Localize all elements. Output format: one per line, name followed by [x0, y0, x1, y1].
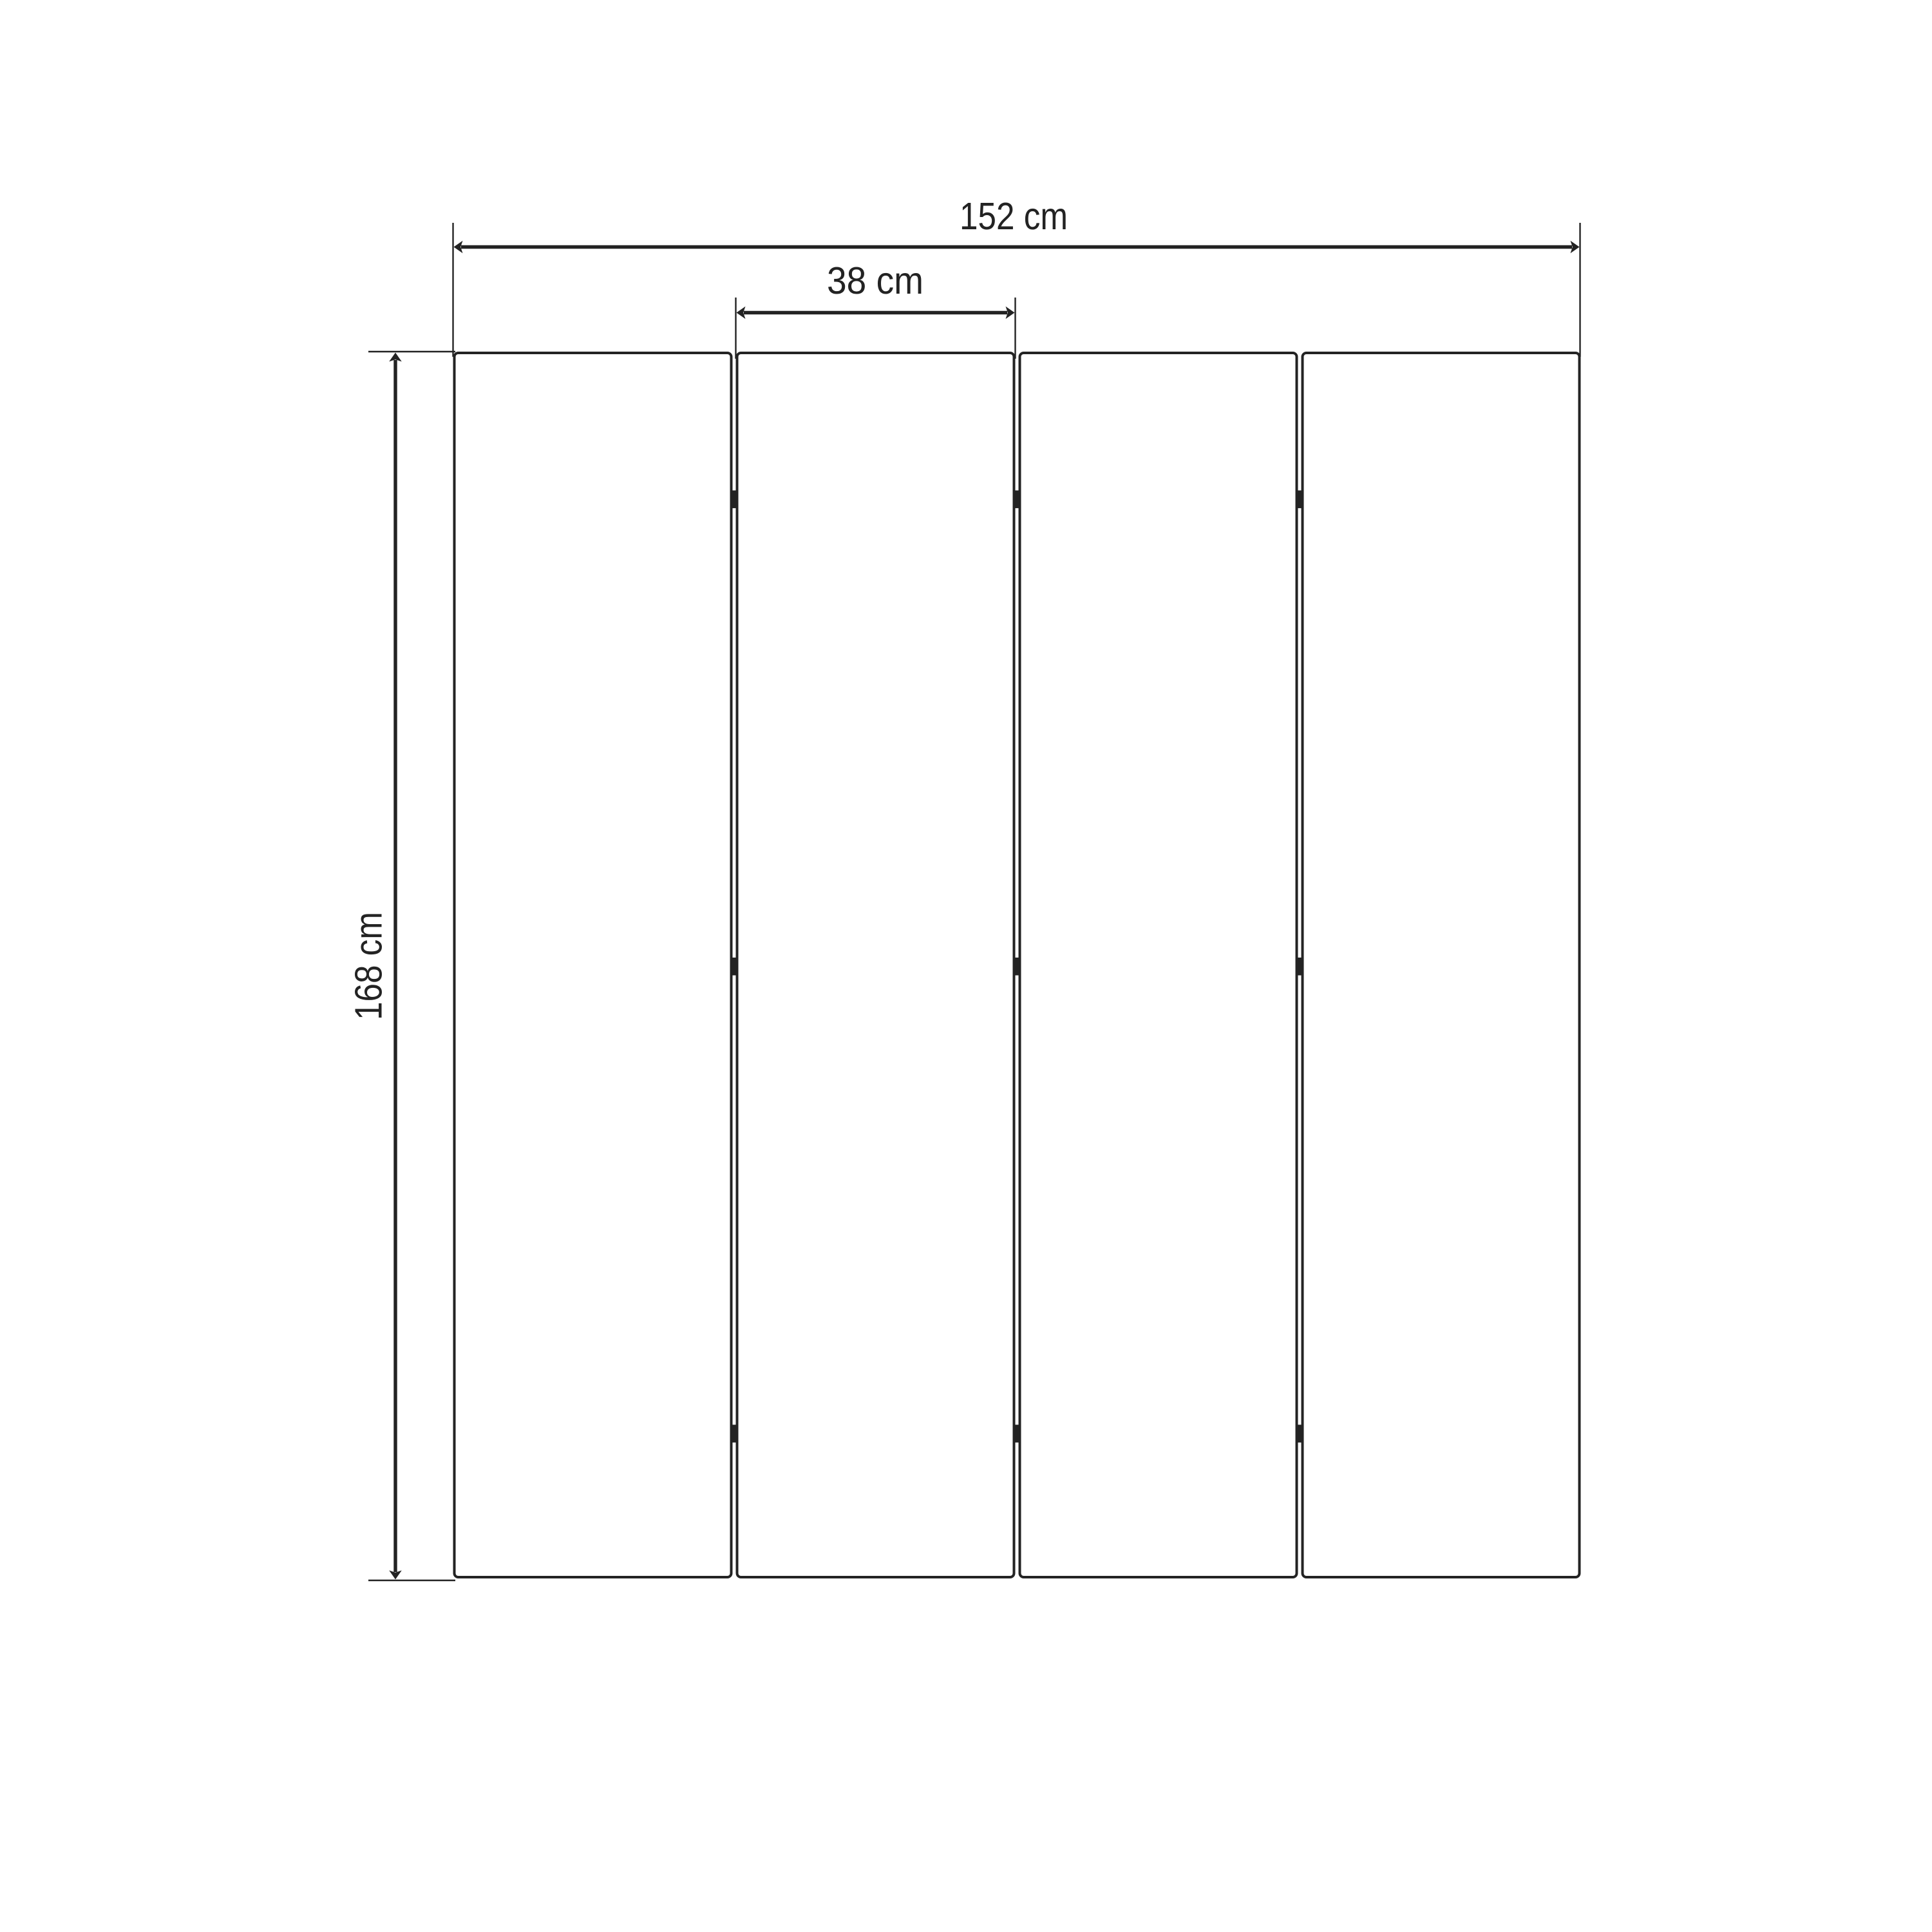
svg-text:38 cm: 38 cm	[827, 259, 923, 302]
svg-text:168 cm: 168 cm	[347, 912, 390, 1020]
svg-text:152 cm: 152 cm	[960, 194, 1068, 238]
